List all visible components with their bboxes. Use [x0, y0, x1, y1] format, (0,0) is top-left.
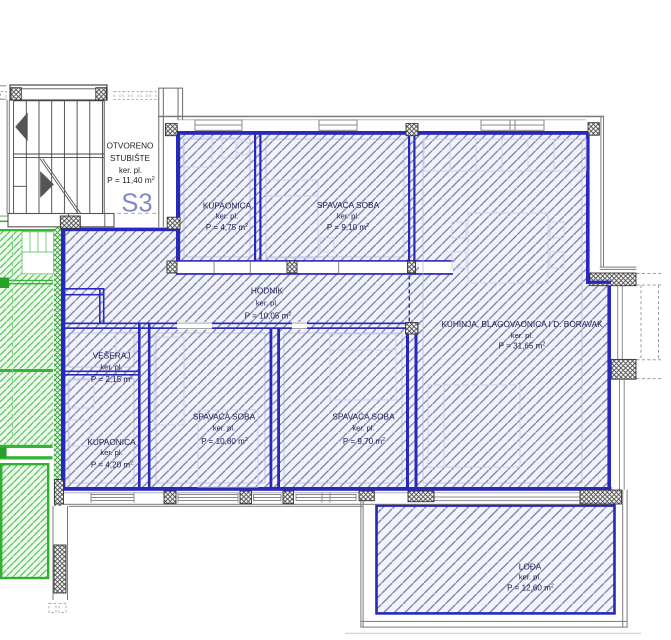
- svg-text:P = 31,65 m2: P = 31,65 m2: [499, 342, 546, 351]
- svg-text:HODNIK: HODNIK: [251, 286, 284, 296]
- svg-text:P = 9,70 m2: P = 9,70 m2: [343, 437, 385, 446]
- svg-text:VEŠERAJ: VEŠERAJ: [93, 351, 131, 361]
- svg-text:OTVORENO: OTVORENO: [107, 142, 154, 151]
- svg-text:KUPAONICA: KUPAONICA: [87, 437, 136, 447]
- svg-text:SPAVAĆA SOBA: SPAVAĆA SOBA: [332, 412, 395, 422]
- svg-text:SPAVAĆA SOBA: SPAVAĆA SOBA: [193, 412, 256, 422]
- svg-text:P = 10,05 m2: P = 10,05 m2: [245, 312, 292, 321]
- svg-text:ker. pl.: ker. pl.: [337, 212, 359, 221]
- svg-text:P = 4,20 m2: P = 4,20 m2: [91, 461, 133, 470]
- svg-text:P = 4,75 m2: P = 4,75 m2: [206, 223, 248, 232]
- svg-text:ker. pl.: ker. pl.: [256, 299, 278, 308]
- svg-text:P = 9,10 m2: P = 9,10 m2: [327, 223, 369, 232]
- svg-text:P = 12,60 m2: P = 12,60 m2: [507, 584, 554, 593]
- svg-text:LOĐA: LOĐA: [519, 562, 542, 572]
- svg-text:P = 10,80 m2: P = 10,80 m2: [201, 437, 248, 446]
- svg-text:P = 11,40 m2: P = 11,40 m2: [107, 175, 155, 185]
- svg-text:ker. pl.: ker. pl.: [352, 424, 374, 433]
- svg-text:ker. pl.: ker. pl.: [213, 424, 235, 433]
- svg-text:ker. pl.: ker. pl.: [511, 331, 533, 340]
- svg-text:ker. pl.: ker. pl.: [216, 212, 238, 221]
- svg-text:STUBIŠTE: STUBIŠTE: [110, 153, 151, 163]
- svg-text:ker. pl.: ker. pl.: [100, 363, 122, 372]
- svg-text:ker. pl.: ker. pl.: [100, 448, 122, 457]
- svg-text:ker. pl.: ker. pl.: [519, 573, 541, 582]
- svg-text:KUHINJA, BLAGOVAONICA I D. BOR: KUHINJA, BLAGOVAONICA I D. BORAVAK: [441, 319, 603, 329]
- svg-text:SPAVAĆA SOBA: SPAVAĆA SOBA: [317, 200, 380, 210]
- svg-text:S3: S3: [121, 190, 152, 218]
- svg-text:P = 2,15 m2: P = 2,15 m2: [91, 375, 133, 384]
- svg-text:KUPAONICA: KUPAONICA: [203, 201, 252, 211]
- svg-text:ker. pl.: ker. pl.: [119, 166, 142, 175]
